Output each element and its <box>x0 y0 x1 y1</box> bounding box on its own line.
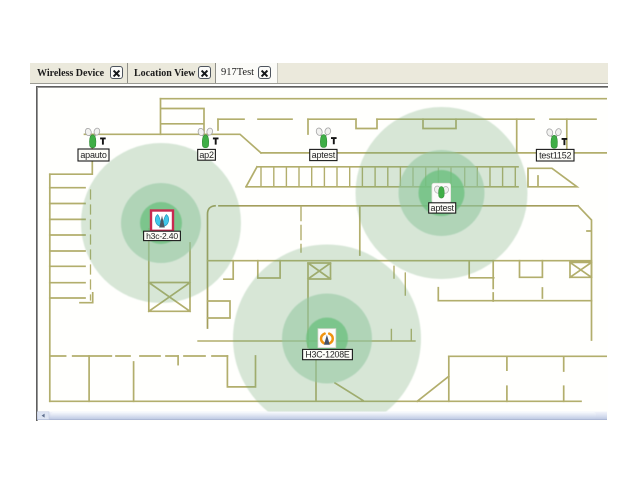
svg-text:apauto: apauto <box>80 150 107 160</box>
svg-text:h3c-2.40: h3c-2.40 <box>146 231 178 241</box>
svg-text:H3C-1208E: H3C-1208E <box>305 350 349 360</box>
svg-text:aptest: aptest <box>431 203 455 213</box>
svg-text:aptest: aptest <box>312 150 336 160</box>
svg-text:ap2: ap2 <box>199 150 214 160</box>
svg-text:test1152: test1152 <box>539 150 571 160</box>
